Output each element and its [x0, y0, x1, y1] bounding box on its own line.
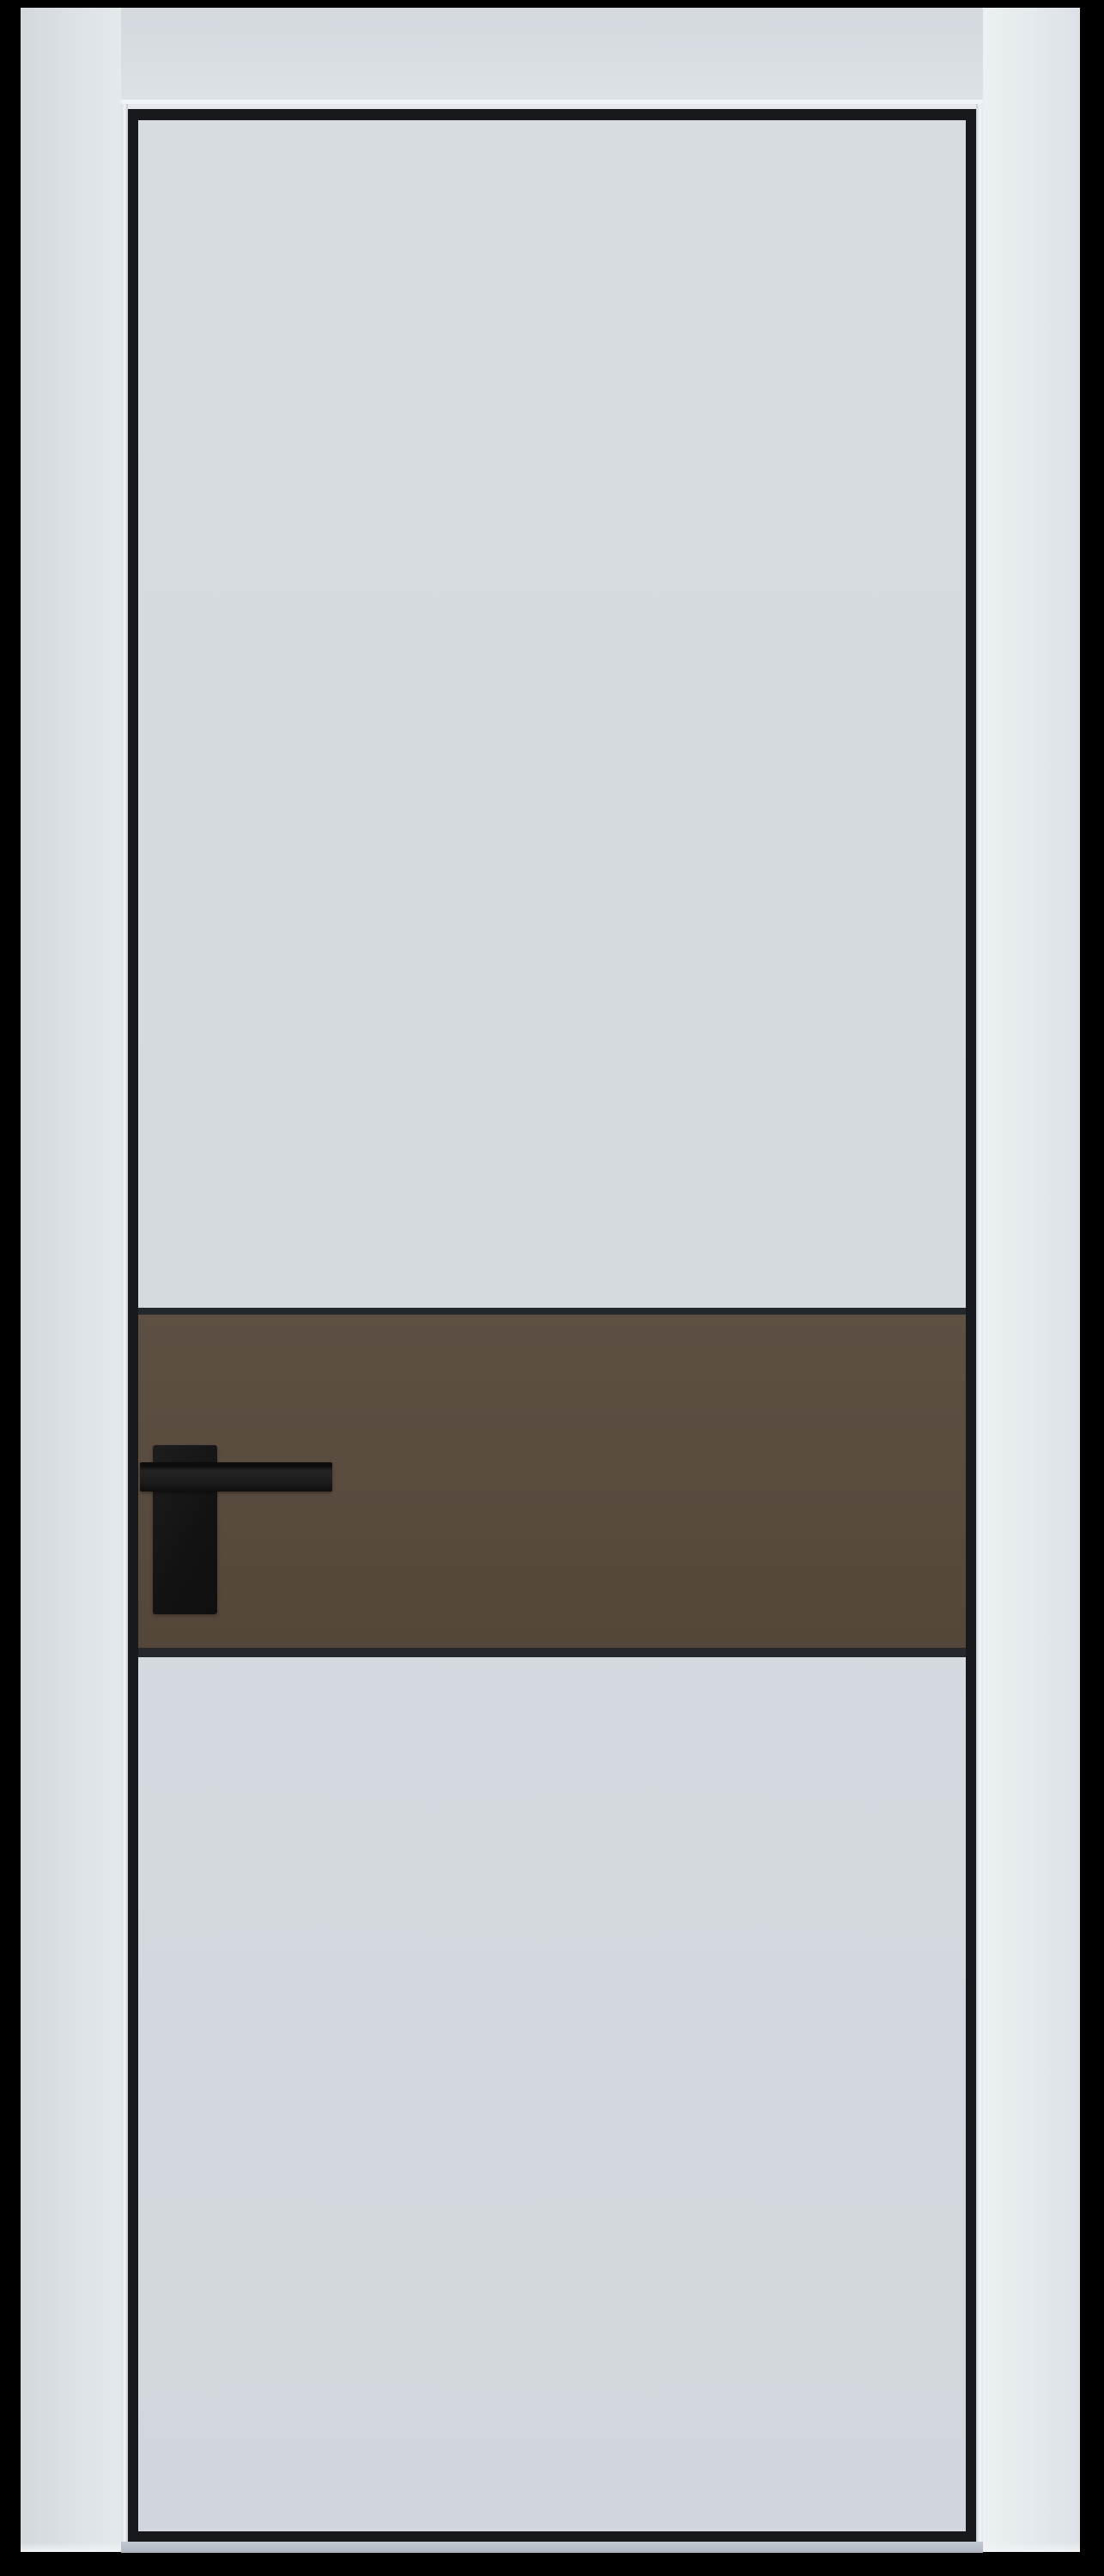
- jamb-highlight-left: [121, 104, 128, 2543]
- door-frame-top-architrave: [121, 8, 983, 104]
- door-frame-right-architrave: [983, 8, 1080, 2552]
- door-edge-trim-black: [128, 109, 976, 2542]
- door-leaf: [138, 120, 966, 2531]
- door-handle-lever: [140, 1462, 332, 1492]
- frame-left-bottom-bevel: [21, 2543, 121, 2552]
- jamb-highlight-right: [976, 104, 983, 2543]
- insert-bottom-divider: [138, 1648, 966, 1657]
- product-photo-stage: [0, 0, 1104, 2576]
- frame-right-bottom-bevel: [983, 2543, 1080, 2552]
- door-frame-left-architrave: [21, 8, 121, 2552]
- insert-top-divider: [138, 1308, 966, 1315]
- threshold-strip: [121, 2542, 983, 2553]
